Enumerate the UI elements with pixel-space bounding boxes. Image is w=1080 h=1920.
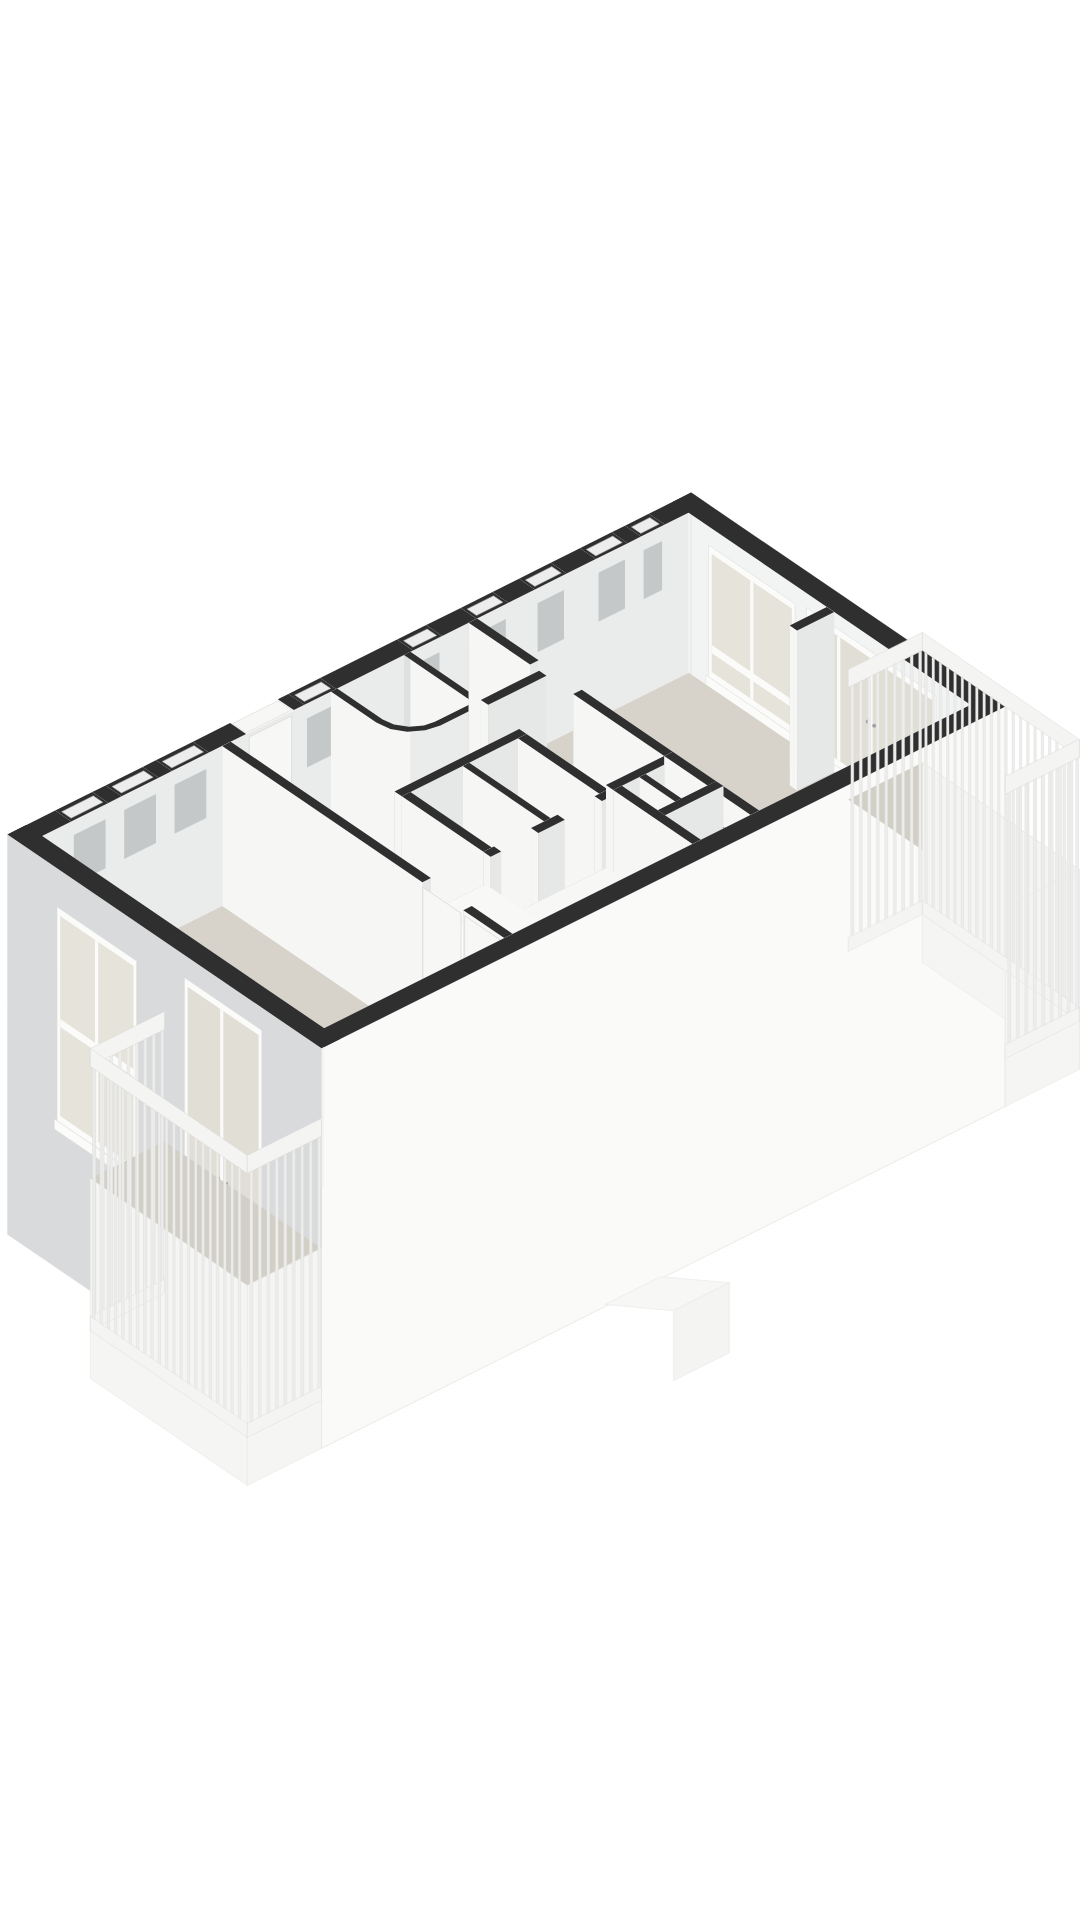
east-balcony-rail-se xyxy=(1005,739,1079,1058)
south-balcony-rail-se xyxy=(247,1118,321,1437)
living-stub-wall xyxy=(790,607,834,791)
floorplan-3d-render xyxy=(0,0,1080,1920)
east-balcony-rail-nw xyxy=(848,632,922,951)
floorplan-page xyxy=(0,0,1080,1920)
